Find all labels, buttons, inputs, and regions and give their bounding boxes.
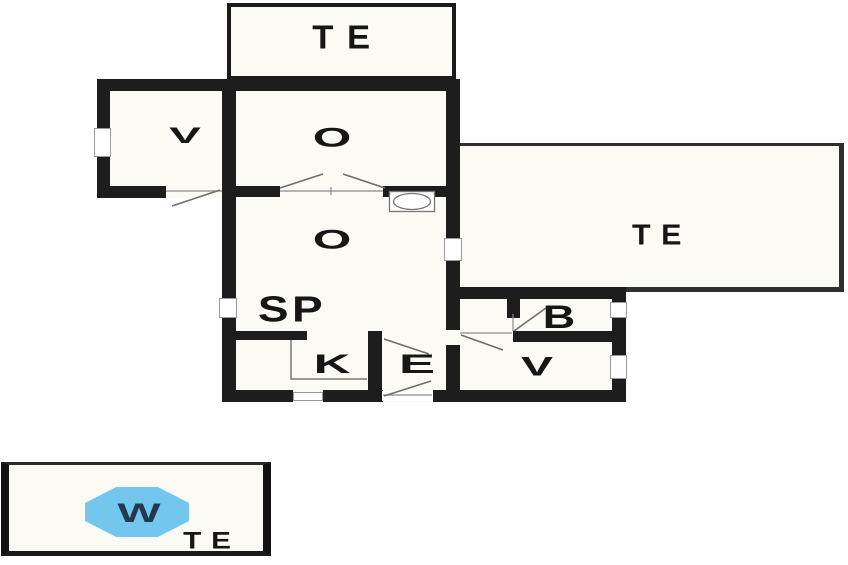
wall-segment <box>446 79 460 238</box>
wall-segment <box>383 186 446 197</box>
terrace-right-outline <box>453 143 844 292</box>
wall-segment <box>612 318 626 355</box>
wall-segment <box>446 345 460 402</box>
wall-segment <box>507 299 520 318</box>
legend-terrace-label: TE <box>183 529 241 553</box>
wall-segment <box>222 186 236 298</box>
wall-segment <box>612 287 626 302</box>
room-label-o-upper: O <box>313 123 352 150</box>
room-label-k: K <box>314 350 351 377</box>
room-area-bv-block <box>446 287 626 402</box>
entrance-door-opening <box>382 391 433 401</box>
room-label-e: E <box>399 350 435 377</box>
wall-segment <box>230 186 280 197</box>
room-area-v-topleft <box>97 79 236 198</box>
wall-segment <box>97 79 110 128</box>
window-opening <box>610 302 627 318</box>
window-opening <box>610 355 627 379</box>
window-opening <box>293 392 323 401</box>
wall-segment <box>433 390 626 402</box>
window-opening <box>219 298 237 318</box>
room-label-v-right: V <box>521 352 553 379</box>
window-opening <box>444 238 462 261</box>
room-label-te-top: TE <box>312 21 384 54</box>
wall-segment <box>230 331 307 340</box>
wall-segment <box>222 390 293 402</box>
room-label-sp: SP <box>258 292 326 328</box>
wall-segment <box>446 299 460 330</box>
room-label-v-topleft: V <box>169 125 201 147</box>
room-label-te-right: TE <box>632 222 692 251</box>
wall-segment <box>446 287 626 299</box>
wall-segment <box>612 379 626 402</box>
room-label-o-lower: O <box>313 225 352 252</box>
wall-segment <box>97 186 166 198</box>
wall-segment <box>222 79 236 198</box>
window-opening <box>94 128 111 157</box>
wall-segment <box>97 79 236 91</box>
floorplan-canvas: TE V O O TE SP K E B V W TE <box>0 0 848 565</box>
wall-segment <box>222 79 460 91</box>
room-label-b: B <box>543 301 576 333</box>
legend-water-label: W <box>117 499 160 526</box>
wall-segment <box>368 331 382 402</box>
